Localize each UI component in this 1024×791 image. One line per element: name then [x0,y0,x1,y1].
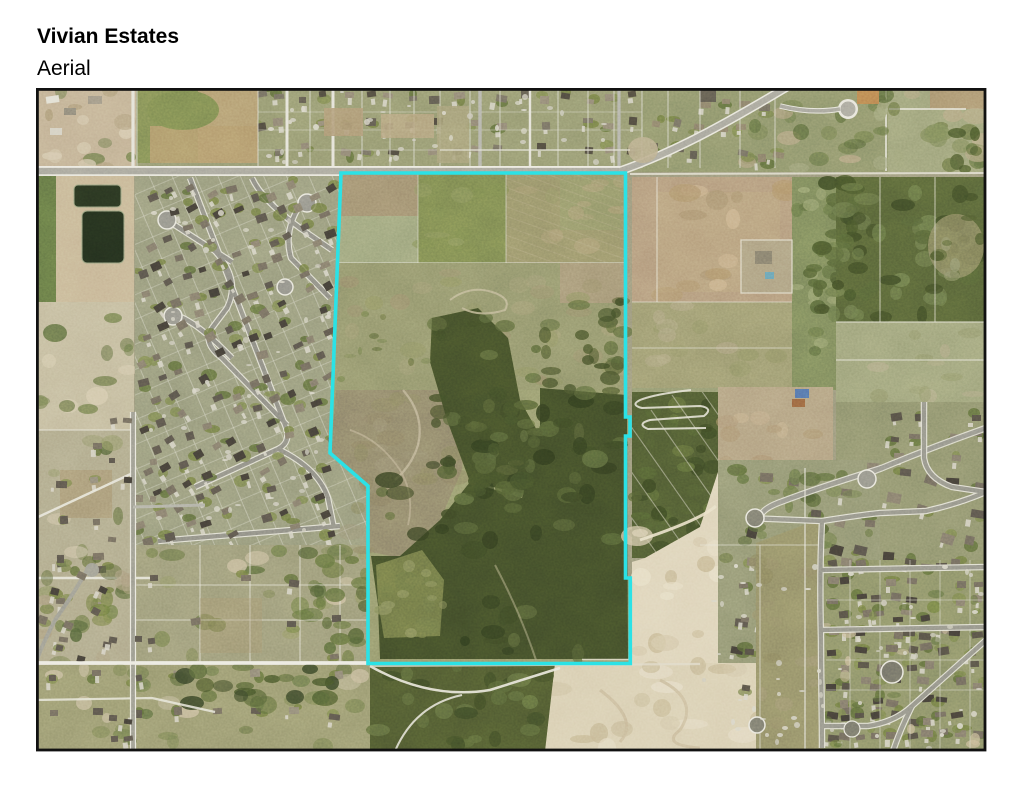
svg-text:Aerial: Aerial [37,57,91,80]
svg-text:Vivian Estates: Vivian Estates [37,25,179,48]
